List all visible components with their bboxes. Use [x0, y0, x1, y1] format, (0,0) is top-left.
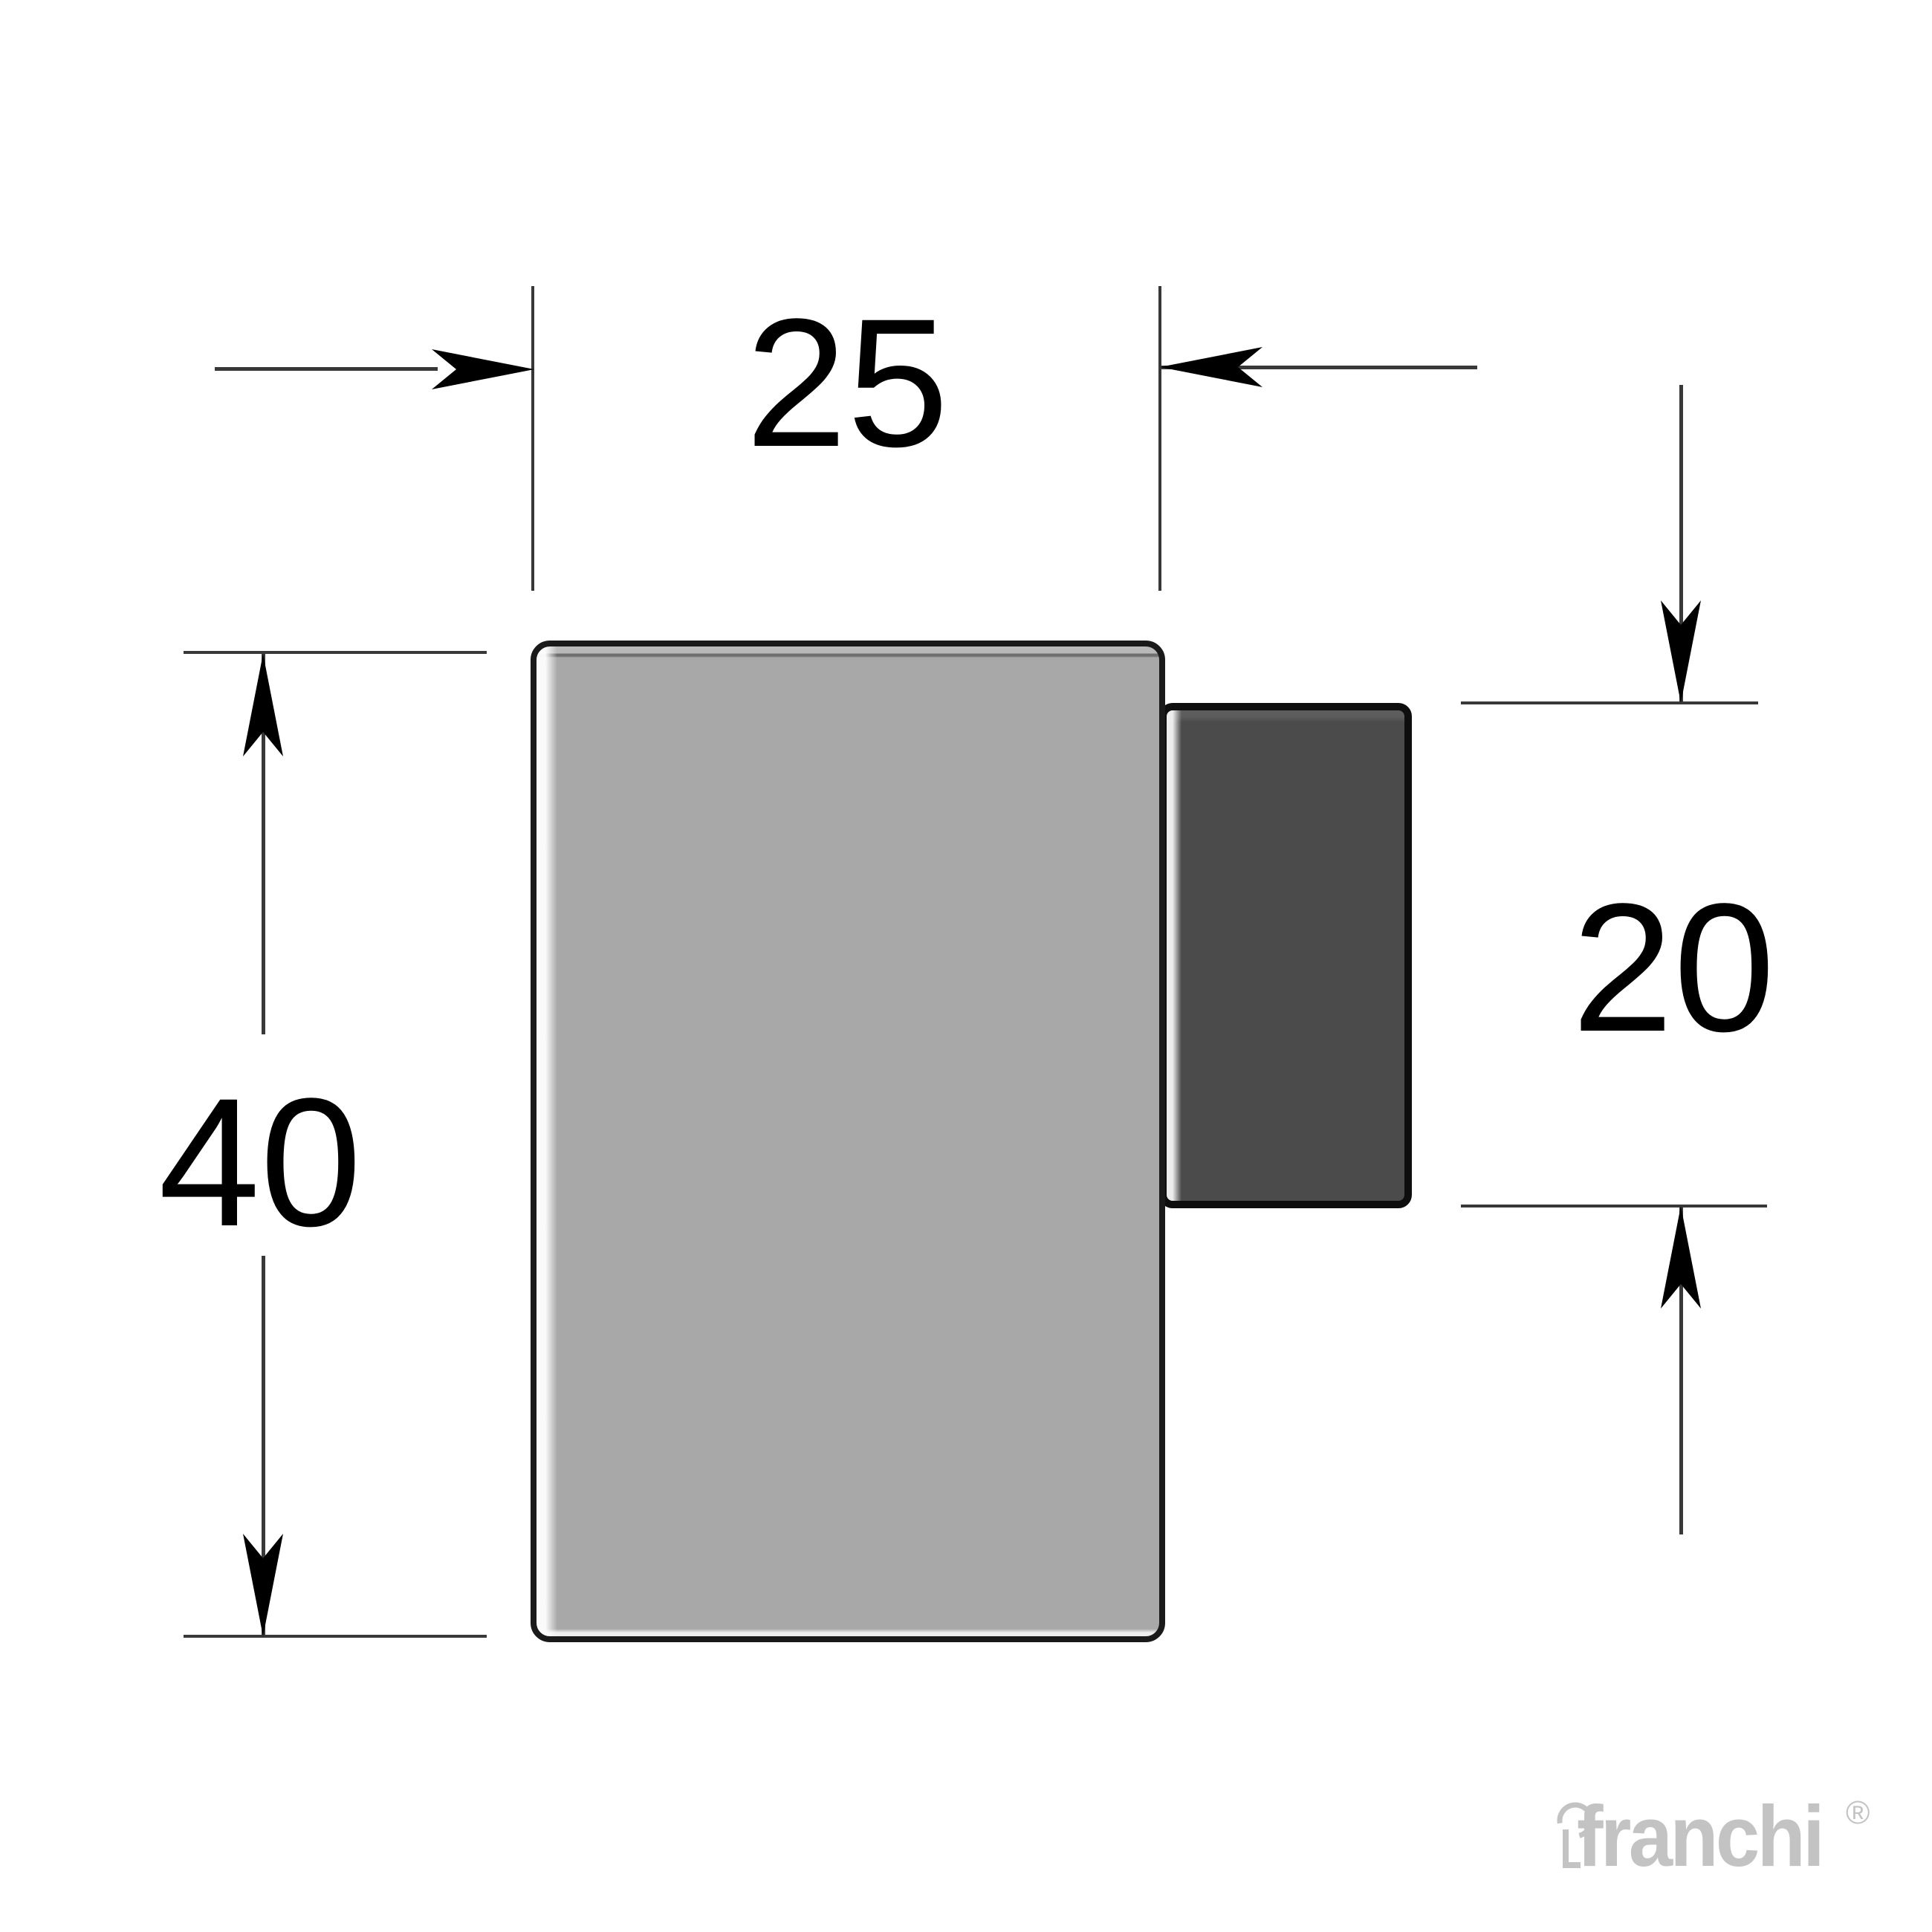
arrowhead-left-icon [1160, 347, 1262, 387]
height-tick-top [184, 651, 487, 654]
side-boss-shape [1159, 703, 1412, 1208]
brand-logo-text: franchi [1577, 1793, 1822, 1879]
arrowhead-up-icon [1661, 1206, 1701, 1309]
boss-height-dimension-label: 20 [1525, 877, 1822, 1060]
arrowhead-down-icon [243, 1534, 283, 1636]
boss-tick-bottom [1461, 1205, 1767, 1207]
height-tick-bottom [184, 1635, 487, 1638]
width-extension-line-right [1158, 286, 1161, 591]
brand-logo: franchi ® [1556, 1789, 1898, 1886]
technical-drawing-canvas: 25 40 20 franchi ® [0, 0, 1932, 1932]
boss-tick-top [1461, 701, 1758, 704]
width-arrow-stem-left [215, 367, 438, 371]
width-extension-line-left [531, 286, 534, 591]
arrowhead-right-icon [432, 349, 534, 389]
height-dimension-label: 40 [111, 1072, 409, 1254]
width-dimension-label: 25 [698, 292, 996, 475]
arrowhead-up-icon [243, 654, 283, 756]
main-body-shape [531, 641, 1165, 1642]
registered-trademark-icon: ® [1846, 1797, 1870, 1829]
arrowhead-down-icon [1661, 600, 1701, 703]
